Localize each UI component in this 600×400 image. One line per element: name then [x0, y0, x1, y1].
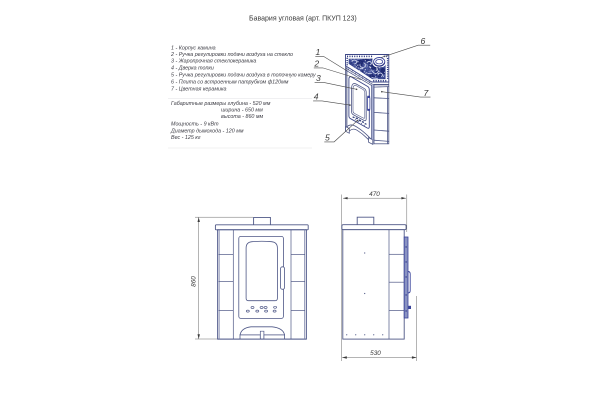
svg-text:5 - Ручка регулировки подачи в: 5 - Ручка регулировки подачи воздуха в т… — [171, 73, 316, 79]
svg-text:7 - Цветная керамика: 7 - Цветная керамика — [171, 87, 226, 93]
svg-text:ширина - 650 мм: ширина - 650 мм — [221, 108, 263, 114]
svg-text:1 - Корпус камина: 1 - Корпус камина — [171, 46, 216, 52]
svg-text:3 - Жаропрочная стеклокерамика: 3 - Жаропрочная стеклокерамика — [171, 59, 256, 65]
svg-text:2 - Ручка регулировки подачи в: 2 - Ручка регулировки подачи воздуха на … — [170, 52, 293, 58]
svg-text:3: 3 — [316, 73, 321, 83]
svg-text:6: 6 — [421, 36, 426, 46]
svg-text:Мощность - 9 кВт: Мощность - 9 кВт — [171, 122, 219, 128]
svg-text:Вес - 125 кг: Вес - 125 кг — [171, 135, 201, 141]
svg-text:2: 2 — [313, 59, 319, 69]
svg-text:Бавария угловая (арт. ПКУП 12: Бавария угловая (арт. ПКУП 123) — [249, 16, 357, 23]
svg-text:высота - 860 мм: высота - 860 мм — [221, 114, 264, 120]
svg-text:470: 470 — [369, 191, 380, 198]
svg-text:4: 4 — [314, 92, 319, 102]
svg-text:Диаметр дымохода - 120 мм: Диаметр дымохода - 120 мм — [170, 128, 244, 134]
svg-text:860: 860 — [191, 276, 198, 287]
svg-text:5: 5 — [325, 132, 330, 142]
svg-text:4 - Дверка топки: 4 - Дверка топки — [171, 66, 214, 72]
svg-text:6 - Плита со встроенным патруб: 6 - Плита со встроенным патрубком ф120мм — [171, 80, 289, 86]
svg-text:1: 1 — [316, 47, 321, 57]
svg-text:530: 530 — [370, 350, 381, 357]
svg-text:Габаритные размеры глубина -: Габаритные размеры глубина - 520 мм — [171, 101, 271, 107]
